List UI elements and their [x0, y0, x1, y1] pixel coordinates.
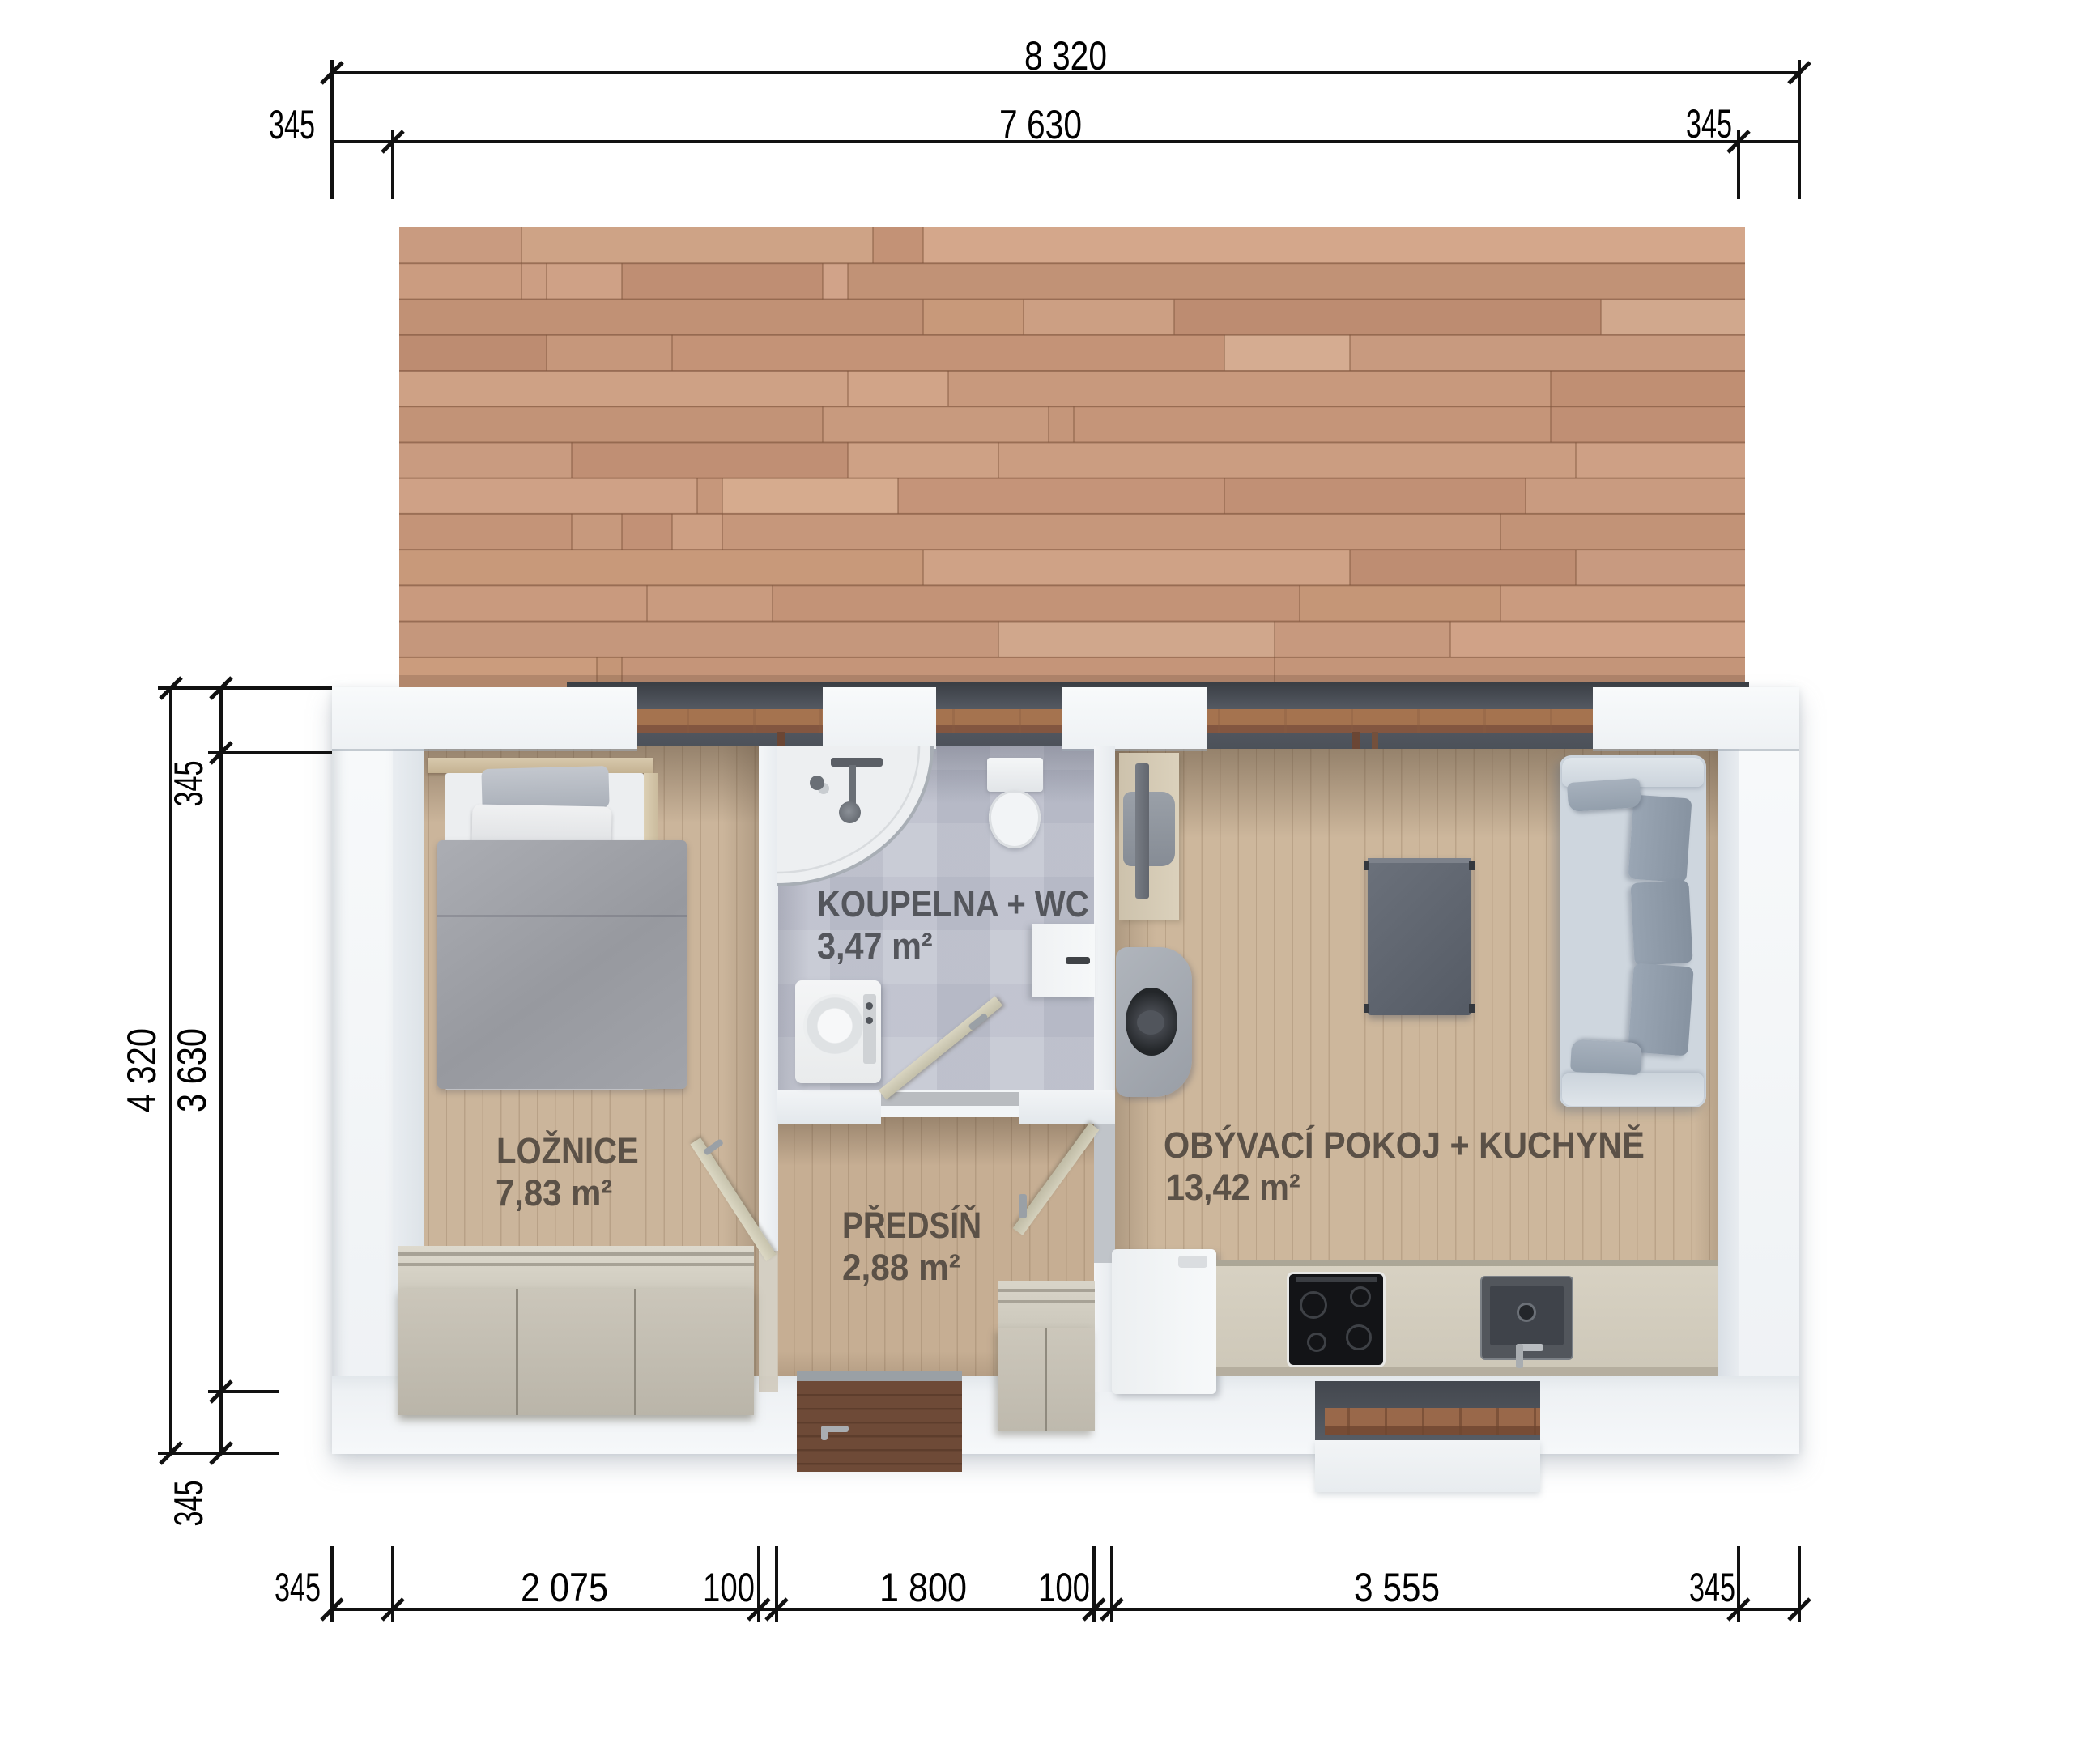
svg-text:345: 345	[1686, 101, 1732, 147]
svg-text:7 630: 7 630	[999, 102, 1082, 147]
svg-text:8 320: 8 320	[1024, 33, 1107, 79]
svg-text:1 800: 1 800	[879, 1565, 967, 1610]
svg-text:4 320: 4 320	[119, 1028, 164, 1112]
svg-text:345: 345	[275, 1565, 321, 1610]
svg-text:3 555: 3 555	[1354, 1565, 1440, 1610]
svg-text:100: 100	[1038, 1565, 1090, 1610]
svg-text:3 630: 3 630	[169, 1028, 215, 1112]
svg-text:345: 345	[1689, 1565, 1735, 1610]
svg-text:2 075: 2 075	[521, 1565, 608, 1610]
svg-text:345: 345	[269, 102, 315, 147]
svg-text:345: 345	[166, 1481, 211, 1527]
svg-text:345: 345	[166, 761, 211, 807]
svg-text:100: 100	[703, 1565, 755, 1610]
